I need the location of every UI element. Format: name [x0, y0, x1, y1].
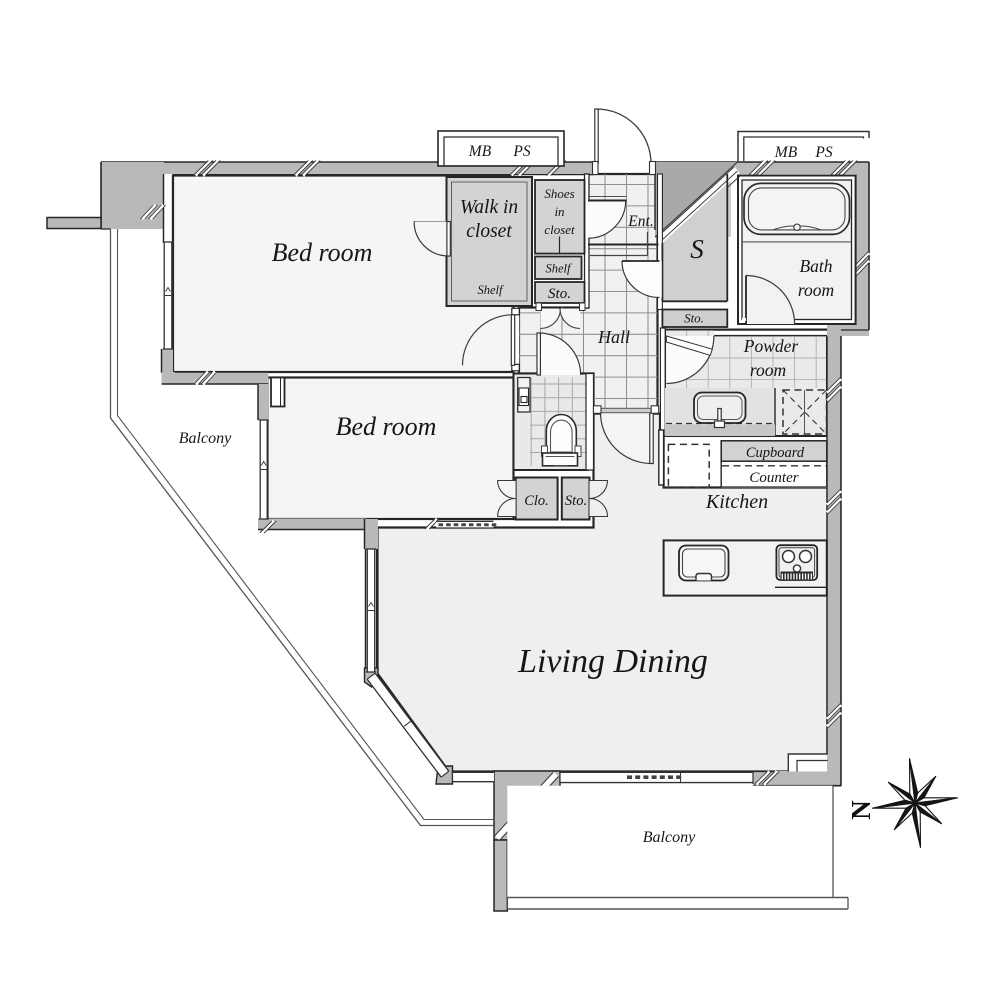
- svg-text:PS: PS: [814, 144, 832, 161]
- svg-text:Powder: Powder: [743, 336, 799, 356]
- svg-text:Bed room: Bed room: [336, 412, 437, 441]
- svg-text:Living Dining: Living Dining: [517, 643, 708, 680]
- svg-text:room: room: [750, 360, 786, 380]
- svg-text:Shoes: Shoes: [544, 186, 574, 201]
- svg-text:Kitchen: Kitchen: [705, 491, 768, 513]
- svg-text:Sto.: Sto.: [565, 493, 587, 509]
- svg-text:Ent.: Ent.: [627, 213, 653, 230]
- svg-text:Walk in: Walk in: [460, 197, 518, 218]
- svg-text:Bed room: Bed room: [272, 238, 373, 267]
- svg-text:Hall: Hall: [597, 327, 630, 347]
- svg-text:MB: MB: [774, 144, 798, 161]
- svg-text:Bath: Bath: [799, 256, 832, 276]
- svg-text:Balcony: Balcony: [643, 829, 696, 846]
- svg-text:MB: MB: [468, 143, 492, 160]
- svg-text:closet: closet: [544, 222, 575, 237]
- svg-text:closet: closet: [466, 221, 512, 242]
- svg-text:Shelf: Shelf: [478, 283, 505, 297]
- svg-text:Shelf: Shelf: [546, 262, 573, 276]
- svg-text:Balcony: Balcony: [179, 430, 232, 447]
- svg-text:PS: PS: [512, 143, 530, 160]
- svg-text:Sto.: Sto.: [548, 286, 571, 302]
- svg-text:N: N: [846, 800, 876, 820]
- svg-text:Counter: Counter: [749, 470, 798, 486]
- svg-text:room: room: [798, 280, 834, 300]
- svg-text:in: in: [554, 204, 564, 219]
- svg-text:Sto.: Sto.: [684, 311, 704, 326]
- svg-text:Clo.: Clo.: [524, 493, 549, 509]
- svg-text:Cupboard: Cupboard: [746, 445, 805, 461]
- svg-text:S: S: [690, 234, 704, 264]
